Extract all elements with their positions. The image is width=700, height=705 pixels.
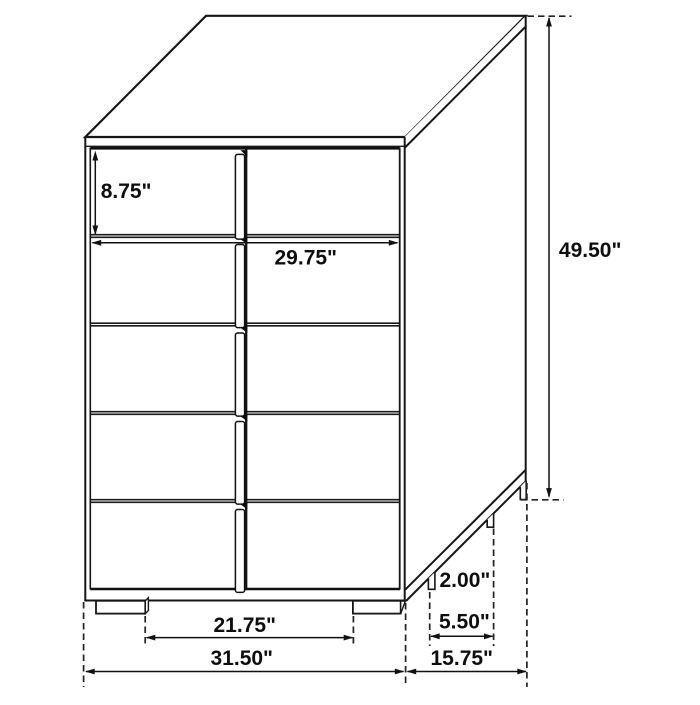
svg-text:5.50": 5.50": [439, 610, 490, 633]
svg-text:29.75": 29.75": [275, 247, 338, 270]
svg-text:8.75": 8.75": [101, 180, 152, 203]
svg-text:15.75": 15.75": [431, 647, 494, 670]
svg-text:2.00": 2.00": [440, 569, 491, 592]
svg-text:21.75": 21.75": [214, 614, 277, 637]
svg-text:31.50": 31.50": [211, 647, 274, 670]
svg-text:49.50": 49.50": [559, 239, 622, 262]
